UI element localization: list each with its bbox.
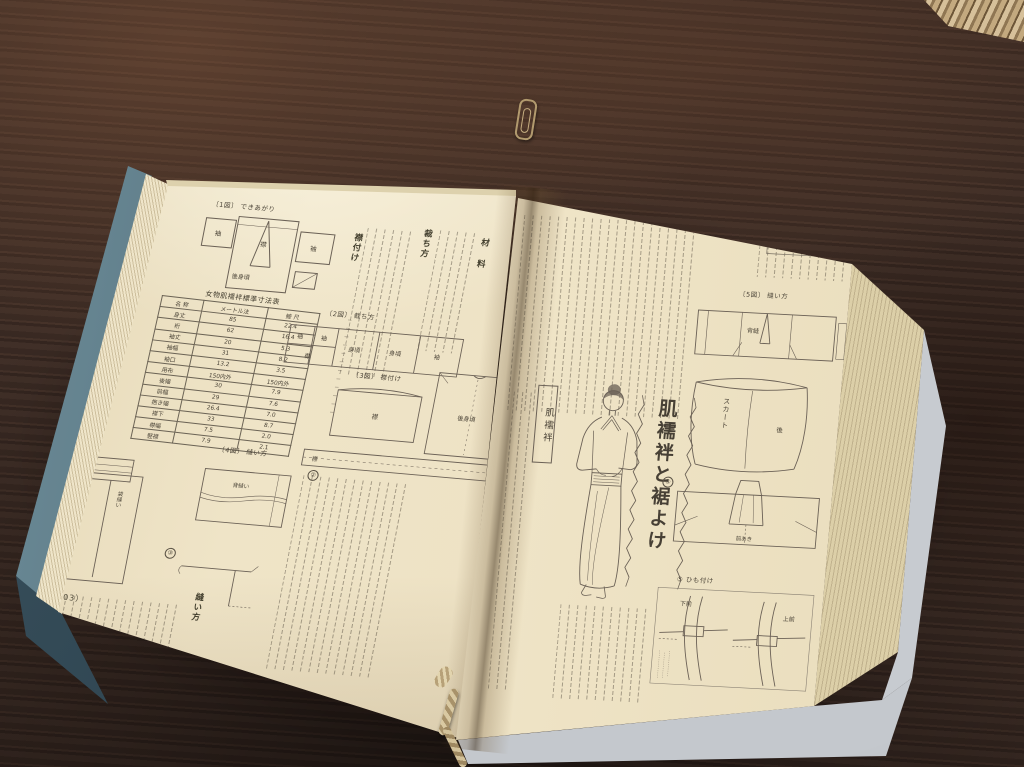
photo-vignette bbox=[0, 0, 1024, 767]
photo-scene: 〔1図〕 できあがり 袖 襟 後身頃 袖 材 料 裁ち方 bbox=[0, 0, 1024, 767]
